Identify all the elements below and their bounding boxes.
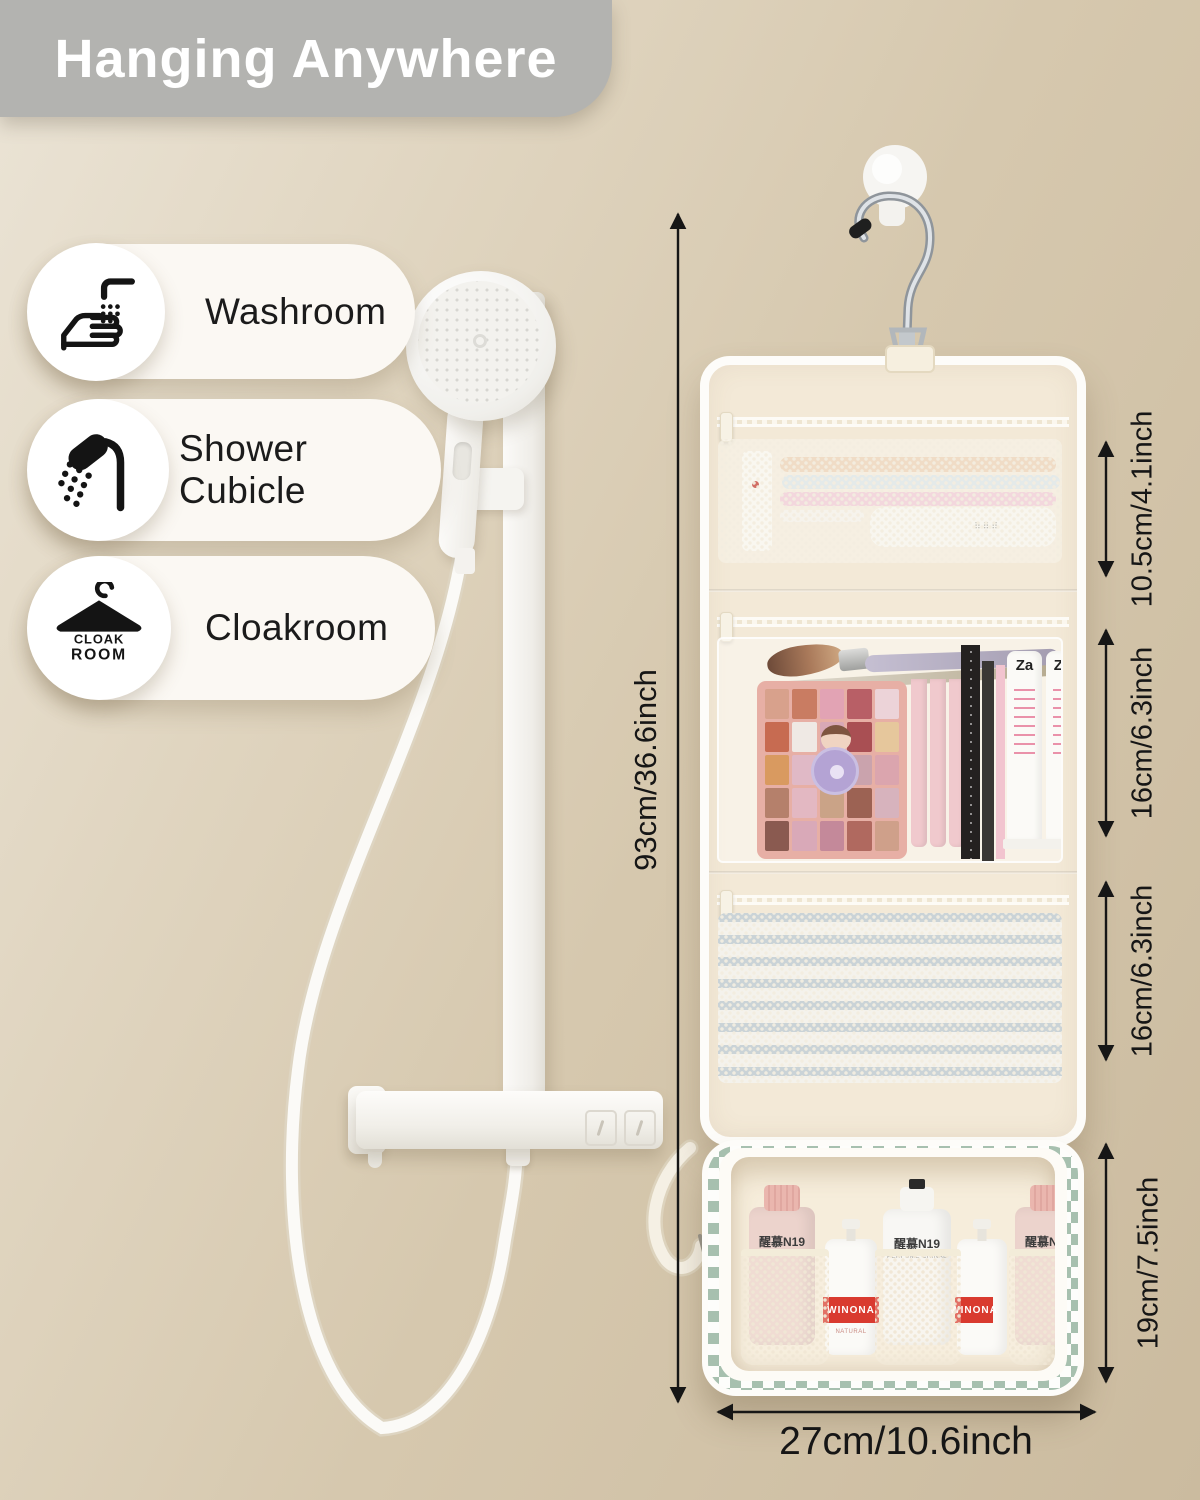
palette-swatch <box>765 755 789 785</box>
palette-swatch <box>875 821 899 851</box>
shower-handle-button <box>452 441 473 480</box>
palette-swatch <box>765 722 789 752</box>
striped-towel-mesh-pocket <box>718 913 1062 1083</box>
tube-crimp <box>1042 839 1063 849</box>
cosmetic-tube: Za <box>1007 651 1042 841</box>
palette-swatch <box>820 689 844 719</box>
shower-valve-spout <box>368 1152 382 1168</box>
zipper-top-pocket <box>717 417 1069 427</box>
valve-button-glyph <box>636 1120 644 1136</box>
palette-swatch <box>875 755 899 785</box>
dimension-label-middle-pocket-upper: 16cm/6.3inch <box>1127 647 1160 820</box>
makeup-pen <box>996 665 1005 859</box>
palette-swatch <box>875 722 899 752</box>
zipper-makeup-pocket <box>717 617 1069 627</box>
valve-button <box>585 1110 617 1146</box>
zipper-pull <box>720 412 733 442</box>
top-mesh-pocket: ⠿⠿⠿ <box>718 439 1062 563</box>
tube-crimp <box>1003 839 1046 849</box>
tube-brand: Za <box>1046 657 1063 674</box>
palette-swatch <box>792 821 816 851</box>
bottle-cap <box>900 1187 934 1211</box>
toothbrush <box>782 475 1060 489</box>
pouch-interior: 醒慕N19 PERFUME CRINAL NATURAL WINONA <box>731 1157 1055 1371</box>
location-label: Shower Cubicle <box>179 428 441 512</box>
fold-crease <box>709 871 1077 874</box>
toothbrush <box>780 510 864 522</box>
bottle-label: 醒慕N19 <box>1015 1233 1055 1250</box>
dimension-label-top-pocket: 10.5cm/4.1inch <box>1127 411 1160 608</box>
brand-band: WINONA <box>823 1297 879 1323</box>
palette-swatch <box>765 689 789 719</box>
lipstick-set <box>911 679 965 847</box>
location-label: Cloakroom <box>205 607 388 649</box>
pump-stem <box>847 1229 856 1241</box>
location-pill-washroom: Washroom <box>29 244 415 379</box>
pump-nozzle <box>842 1219 860 1229</box>
shower-head-face <box>418 281 540 403</box>
valve-button <box>624 1110 656 1146</box>
handwash-icon <box>53 269 139 355</box>
makeup-brush-bristles <box>765 639 845 681</box>
toothbrush <box>780 492 1056 506</box>
bottle-cap <box>764 1185 800 1211</box>
palette-decoration <box>811 747 859 795</box>
banner: Hanging Anywhere <box>0 0 612 117</box>
zipper-towel-pocket <box>717 895 1069 905</box>
lipstick <box>911 679 927 847</box>
dimension-label-bottom-pouch: 19cm/7.5inch <box>1133 1177 1166 1350</box>
dimension-label-total-height: 93cm/36.6inch <box>628 669 664 871</box>
bottle-body: WINONA <box>957 1239 1007 1355</box>
shower-head <box>406 271 556 421</box>
palette-swatch <box>765 821 789 851</box>
palette-swatch <box>765 788 789 818</box>
location-pill-shower-cubicle: Shower Cubicle <box>29 399 441 541</box>
palette-swatch <box>847 788 871 818</box>
hanging-organizer: ⠿⠿⠿ Za Za <box>700 356 1086 1146</box>
inner-mesh-pocket <box>1009 1249 1055 1365</box>
washroom-icon-badge <box>27 243 165 381</box>
palette-swatch <box>847 821 871 851</box>
bottle-cap-tip <box>909 1179 925 1189</box>
palette-swatch <box>847 689 871 719</box>
dimension-label-middle-pocket-lower: 16cm/6.3inch <box>1127 885 1160 1058</box>
palette-swatch <box>820 821 844 851</box>
product-infographic: ⠿⠿⠿ Za Za <box>0 0 1200 1500</box>
cloakroom-icon-badge: CLOAK ROOM <box>27 556 171 700</box>
tube-brand: Za <box>1007 657 1042 674</box>
flower-icon <box>830 765 844 779</box>
tube-logo-dot <box>752 481 759 488</box>
toothpaste-text: ⠿⠿⠿ <box>974 521 1000 532</box>
palette-swatch <box>875 788 899 818</box>
pump-bottle: WINONA <box>957 1219 1007 1355</box>
lipstick <box>930 679 946 847</box>
pump-nozzle <box>973 1219 991 1229</box>
pouch-front: 醒慕N19 PERFUME CRINAL NATURAL WINONA <box>719 1148 1067 1381</box>
shower-head-center <box>473 334 487 348</box>
tube-label-text <box>1053 689 1063 761</box>
shower-icon-badge <box>27 399 169 541</box>
bottle-body: NATURAL WINONA <box>825 1239 877 1355</box>
pump-stem <box>978 1229 987 1241</box>
cloak-icon-text-line2: ROOM <box>71 646 127 663</box>
toothpaste-tube: ⠿⠿⠿ <box>870 507 1056 547</box>
palette-swatch <box>792 689 816 719</box>
bottle-sublabel: NATURAL <box>825 1329 877 1335</box>
shower-handle <box>438 399 485 559</box>
banner-title: Hanging Anywhere <box>54 28 557 90</box>
location-pill-cloakroom: CLOAK ROOM Cloakroom <box>29 556 435 700</box>
clear-makeup-pocket: Za Za <box>717 637 1063 863</box>
shower-icon <box>53 425 143 515</box>
inner-mesh-pocket <box>875 1249 961 1365</box>
dimension-label-width: 27cm/10.6inch <box>779 1420 1033 1464</box>
inner-mesh-pocket <box>741 1249 829 1365</box>
valve-button-glyph <box>597 1120 605 1136</box>
shower-handle-neck <box>455 548 475 574</box>
palette-swatch <box>875 689 899 719</box>
palette-swatch <box>792 722 816 752</box>
bottle-cap <box>1030 1185 1055 1211</box>
tube-label-text <box>1014 689 1035 761</box>
eyeliner-pencil <box>982 661 994 861</box>
location-label: Washroom <box>205 291 387 333</box>
fold-crease <box>709 589 1077 592</box>
bottle-label: WINONA <box>827 1305 875 1316</box>
palette-swatch <box>792 788 816 818</box>
eyeliner-pencil <box>961 645 980 859</box>
cloak-icon-text-line1: CLOAK <box>74 632 124 647</box>
toiletry-tube <box>742 451 772 551</box>
toiletry-pouch: 醒慕N19 PERFUME CRINAL NATURAL WINONA <box>702 1140 1084 1396</box>
toothbrush <box>780 457 1056 472</box>
hanger-icon: CLOAK ROOM <box>53 582 145 674</box>
pump-bottle: NATURAL WINONA <box>825 1219 877 1355</box>
bottle-label: 醒慕N19 <box>749 1233 815 1250</box>
cosmetic-tube: Za <box>1046 651 1063 841</box>
